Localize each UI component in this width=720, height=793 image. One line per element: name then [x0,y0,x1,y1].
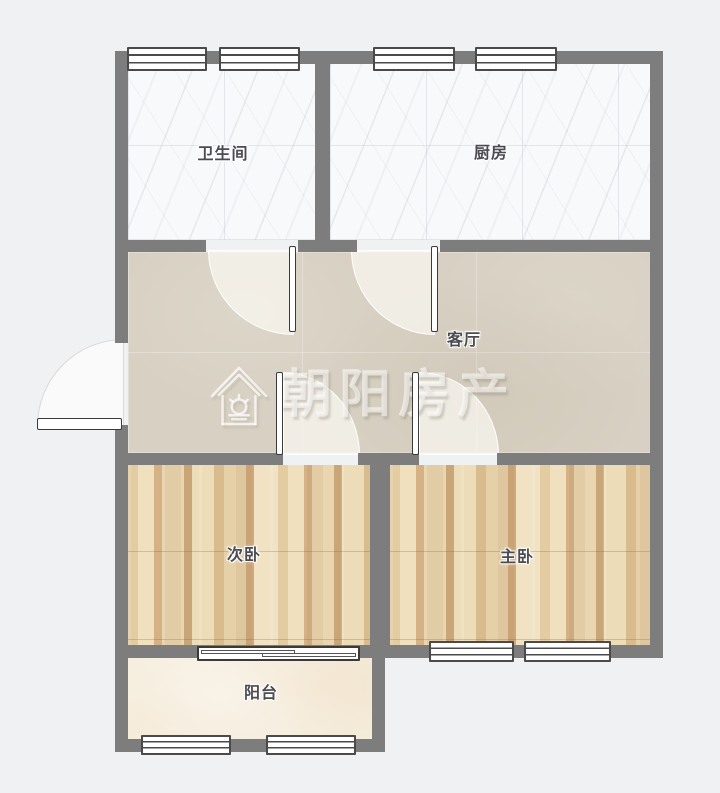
wall [115,240,206,252]
window [141,735,231,755]
kitchen-door-leaf [431,246,438,332]
entry-door-swing [37,339,124,426]
window [475,47,557,71]
wall [298,240,357,252]
window [266,735,356,755]
entry-door-leaf [37,418,122,430]
wall [315,64,330,252]
room-label-second-bedroom: 次卧 [227,541,261,565]
room-label-bathroom: 卫生间 [197,140,248,164]
room-label-kitchen: 厨房 [474,139,508,163]
sliding-door-panel [262,653,356,657]
window [429,641,514,662]
floorplan-canvas: 朝阳房产 卫生间 厨房 客厅 次卧 主卧 阳台 [0,0,720,793]
room-label-master-bedroom: 主卧 [500,543,534,567]
wall [440,240,663,252]
window [127,47,207,71]
bathroom-door-leaf [289,246,296,332]
wall [650,51,663,658]
sliding-door [197,646,360,661]
wall [497,453,663,465]
window [373,47,455,71]
room-label-living: 客厅 [447,326,481,350]
room-label-balcony: 阳台 [244,679,278,703]
wall [372,645,385,752]
wall [115,453,283,465]
wall [370,453,390,658]
window [219,47,300,71]
wall [115,425,128,752]
wall [115,51,128,343]
window [524,641,611,662]
master-bedroom-door-leaf [412,372,419,455]
second-bedroom-door-leaf [276,372,283,455]
